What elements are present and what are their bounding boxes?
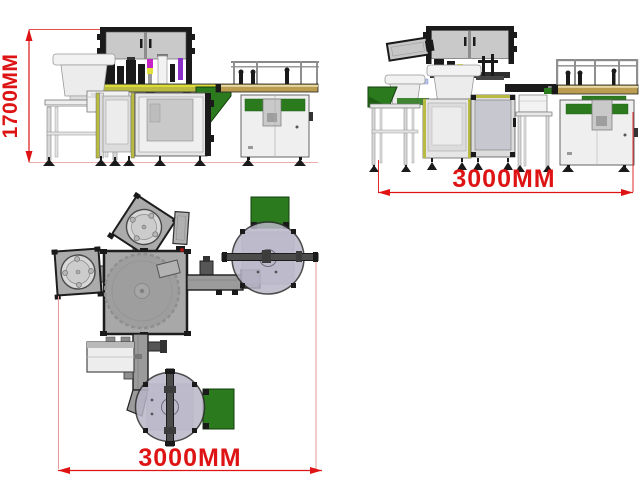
machine-dimension-drawing: 1700MM: [0, 0, 640, 480]
side-width-label: 3000MM: [452, 165, 555, 193]
plan-control-box: [87, 337, 142, 372]
front-tower-light-magenta: [147, 59, 153, 68]
side-output-machine: [544, 59, 638, 172]
side-stand: [515, 95, 553, 172]
drawing-svg: 1700MM: [0, 0, 640, 480]
plan-turntable-bottom: [136, 369, 235, 446]
front-door-handle-right: [149, 39, 152, 48]
front-bowl-rim: [53, 54, 115, 65]
front-output-machine: [216, 61, 319, 166]
front-dimension-arrow-up: [26, 29, 33, 41]
side-top-cabinet: [423, 26, 517, 64]
front-purple-strip: [178, 58, 183, 80]
front-dimension-arrow-down: [26, 151, 33, 163]
front-height-label: 1700MM: [0, 54, 22, 139]
front-elevation-view: 1700MM: [0, 27, 319, 166]
plan-view: 3000MM: [51, 192, 322, 474]
front-door-handle-left: [140, 39, 143, 48]
side-dimension-arrow-right: [621, 189, 633, 196]
side-second-cabinet: [471, 95, 516, 170]
plan-machine-body: [100, 248, 191, 336]
plan-bowl-feeder-left: [51, 246, 103, 299]
side-cabinet-panel: [475, 100, 511, 150]
side-main-cabinet: [423, 99, 471, 170]
side-feeder-table: [369, 104, 420, 172]
plan-width-label: 3000MM: [138, 444, 241, 472]
plan-dimension-arrow-left: [58, 467, 70, 474]
front-cylinder: [158, 56, 167, 84]
plan-turntable-bottom-rail: [167, 369, 174, 446]
side-dimension-arrow-left: [378, 189, 390, 196]
side-elevation-view: 3000MM: [368, 26, 638, 196]
front-tower-light-yellow: [147, 68, 153, 74]
plan-side-panel: [173, 212, 189, 245]
